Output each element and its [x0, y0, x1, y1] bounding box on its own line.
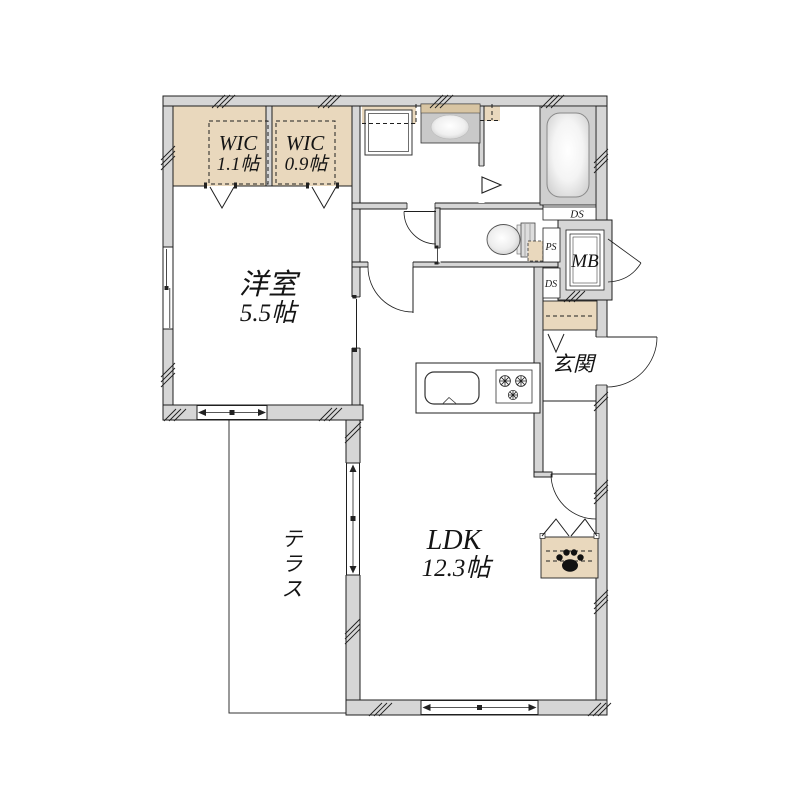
wall-laundry-south — [352, 203, 543, 209]
washbasin-icon — [421, 104, 480, 143]
wic1-label: WIC — [219, 131, 258, 155]
floor-plan-page: WIC 1.1帖 WIC 0.9帖 洋室 5.5帖 LDK 12.3帖 テ ラ … — [0, 0, 800, 800]
toilet-icon — [487, 223, 535, 257]
ps-dashed-box — [528, 241, 543, 261]
wall-mid-lower — [352, 348, 360, 405]
wall-mid-upper — [352, 106, 360, 297]
washing-machine-icon — [365, 110, 412, 155]
terrace-label-char-2: ラ — [282, 552, 303, 576]
ldk-label: LDK — [426, 525, 483, 556]
western-room-label: 洋室 — [239, 269, 301, 301]
western-room-size: 5.5帖 — [240, 300, 299, 327]
ds-bottom-label: DS — [544, 279, 557, 290]
kitchen-sink-icon — [425, 372, 479, 404]
ps-label: PS — [544, 242, 556, 253]
floor-plan: WIC 1.1帖 WIC 0.9帖 洋室 5.5帖 LDK 12.3帖 テ ラ … — [0, 0, 800, 800]
mb-label: MB — [570, 251, 599, 272]
entrance-label: 玄関 — [552, 352, 597, 376]
kitchen — [416, 363, 540, 413]
bathtub-icon — [547, 113, 589, 197]
wall-wic-divider — [266, 106, 272, 186]
stove-burners-icon — [496, 370, 532, 403]
wic1-size: 1.1帖 — [217, 154, 263, 175]
wall-stub — [534, 472, 552, 477]
wic2-size: 0.9帖 — [285, 154, 331, 175]
ldk-size: 12.3帖 — [422, 555, 494, 582]
pet-closet-box — [541, 537, 598, 578]
terrace-label-char-1: テ — [282, 527, 304, 551]
terrace-label-char-3: ス — [282, 577, 303, 601]
ds-top-label: DS — [569, 209, 584, 221]
wic2-label: WIC — [286, 131, 325, 155]
